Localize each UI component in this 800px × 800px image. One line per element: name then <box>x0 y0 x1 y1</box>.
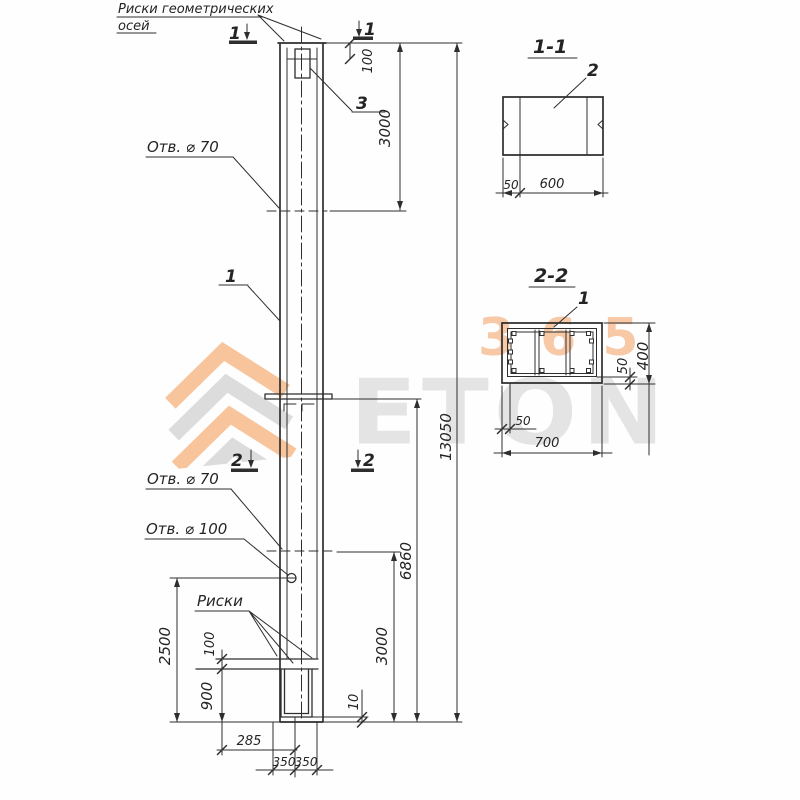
dim-13050-total: 13050 <box>437 413 455 461</box>
hole-100-label: Отв. ⌀ 100 <box>146 520 227 538</box>
section-2-2: 2-2 1 <box>494 265 655 457</box>
part-label-3: 3 <box>356 94 368 114</box>
section-1-1-dim-600: 600 <box>540 177 565 192</box>
section-1-1-part-label: 2 <box>587 61 599 81</box>
cut-label-1-right: 1 <box>364 20 376 40</box>
bracket-angle-marks <box>284 404 314 411</box>
part-label-1: 1 <box>225 267 237 287</box>
section-2-2-title: 2-2 <box>534 265 568 287</box>
cut-label-2-right: 2 <box>363 451 375 471</box>
cut-label-1-left: 1 <box>229 24 241 44</box>
section-1-1-dim-50: 50 <box>503 178 519 192</box>
column-main-view <box>196 27 337 722</box>
main-view-texts: Риски геометрических осей 3 1 Отв. ⌀ 70 … <box>118 2 368 610</box>
leaders <box>231 15 352 663</box>
axes-note-line1: Риски геометрических <box>118 2 274 17</box>
riski-label: Риски <box>197 592 243 610</box>
axes-note-line2: осей <box>118 19 150 34</box>
dimension-ticks <box>218 39 367 775</box>
embedded-plate-3 <box>295 49 310 78</box>
hole-70-mid-label: Отв. ⌀ 70 <box>147 470 219 488</box>
section-1-1-inner <box>520 97 587 155</box>
dim-350-left: 350 <box>273 755 296 769</box>
section-1-1-title: 1-1 <box>533 36 567 58</box>
dim-100-top: 100 <box>361 49 376 74</box>
section-2-2-rebar-dots <box>509 332 594 373</box>
dim-3000-bottom: 3000 <box>373 627 391 665</box>
cut-arrow-heads <box>244 29 362 468</box>
dim-100-left: 100 <box>203 632 218 657</box>
console-bracket <box>265 394 332 399</box>
drawing-sheet: ETON 365 <box>0 0 800 800</box>
hole-70-top-label: Отв. ⌀ 70 <box>147 138 219 156</box>
section-2-2-part-label: 1 <box>578 289 590 309</box>
bottom-recess <box>281 669 312 717</box>
section-1-1-outline <box>503 97 603 155</box>
section-2-2-cage-outer <box>508 329 597 377</box>
dim-3000-top: 3000 <box>376 109 394 147</box>
section-2-2-dim-400: 400 <box>634 342 652 371</box>
section-2-2-leader <box>554 307 577 327</box>
section-2-2-ext <box>494 323 655 457</box>
section-2-2-dim-50-right: 50 <box>616 358 631 375</box>
section-1-1-leader <box>554 78 586 108</box>
section-2-2-dim-700: 700 <box>535 436 560 451</box>
section-2-2-cage-inner <box>511 332 593 374</box>
dim-285: 285 <box>237 734 262 749</box>
section-1-1-notches <box>503 120 603 129</box>
bottom-risk-bar <box>196 659 318 669</box>
section-2-2-dim-50-bottom: 50 <box>515 414 531 428</box>
dim-350-right: 350 <box>295 755 318 769</box>
section-1-1: 1-1 2 50 600 <box>496 36 608 198</box>
column-drawing: 1 1 2 2 Риски геометрических осей 3 1 От… <box>0 0 800 800</box>
dim-900: 900 <box>198 682 216 711</box>
dim-10: 10 <box>347 694 362 711</box>
cut-label-2-left: 2 <box>231 451 243 471</box>
dim-6860: 6860 <box>397 542 415 580</box>
dim-2500: 2500 <box>156 627 174 665</box>
